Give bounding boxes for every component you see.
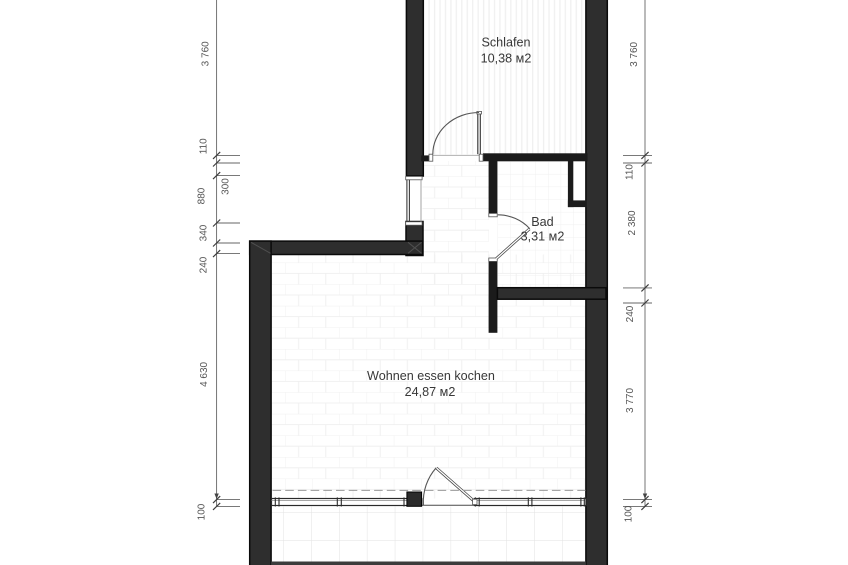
svg-text:Schlafen: Schlafen	[481, 36, 530, 50]
svg-text:300: 300	[221, 178, 232, 195]
svg-text:240: 240	[625, 305, 636, 322]
svg-text:3,31 м2: 3,31 м2	[521, 230, 565, 244]
svg-text:3 760: 3 760	[629, 41, 640, 66]
svg-text:Bad: Bad	[531, 215, 553, 229]
svg-text:3 760: 3 760	[201, 41, 212, 66]
svg-text:110: 110	[199, 138, 210, 154]
svg-text:880: 880	[197, 187, 208, 204]
svg-text:240: 240	[199, 256, 210, 273]
svg-text:340: 340	[199, 224, 210, 241]
svg-text:2 380: 2 380	[627, 210, 638, 235]
svg-text:100: 100	[624, 505, 635, 522]
svg-text:Wohnen essen kochen: Wohnen essen kochen	[367, 369, 495, 383]
svg-text:10,38 м2: 10,38 м2	[481, 52, 532, 66]
svg-text:100: 100	[197, 503, 208, 520]
svg-text:3 770: 3 770	[625, 388, 636, 413]
svg-text:24,87 м2: 24,87 м2	[405, 385, 456, 399]
svg-text:4 630: 4 630	[199, 361, 210, 386]
svg-text:110: 110	[625, 164, 636, 180]
